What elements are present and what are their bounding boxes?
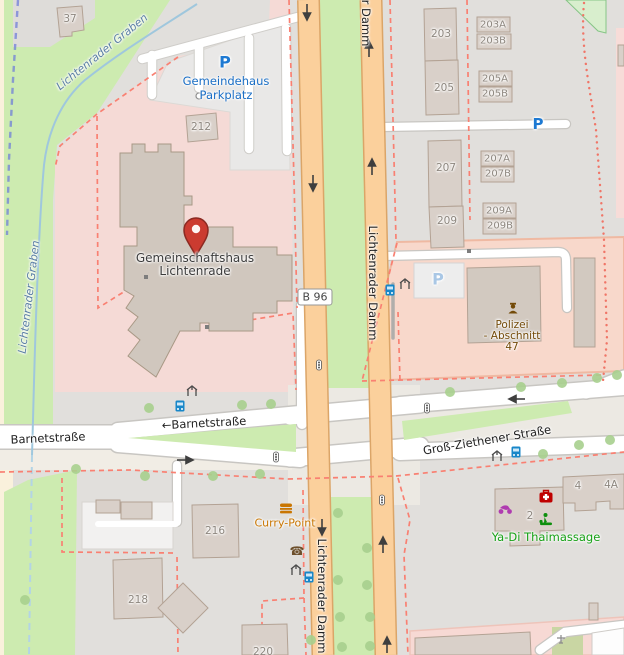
map-base-layer	[0, 0, 624, 655]
fast-food-icon	[280, 504, 292, 514]
parking-entrance-node	[196, 93, 202, 99]
map-canvas[interactable]: Lichtenrader Graben Lichtenrader Graben …	[0, 0, 624, 655]
police-parking	[414, 263, 464, 298]
